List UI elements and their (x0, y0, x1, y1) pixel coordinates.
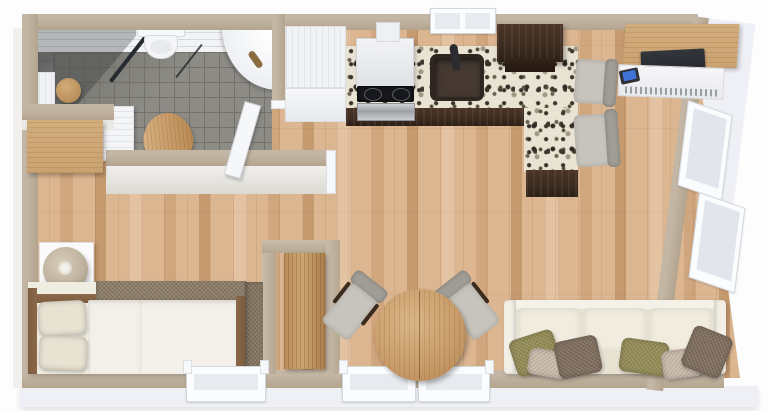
bed-throw-drape (245, 282, 263, 372)
bar-chair (573, 109, 621, 170)
bed-side-rail (28, 288, 37, 374)
floor-plan-render (0, 0, 768, 411)
fridge-tall-cabinet (285, 26, 346, 88)
wall-bathroom-bedroom-right (106, 150, 334, 166)
window-jamb (485, 360, 494, 374)
closet-wall-left (262, 240, 276, 374)
kitchen-window-pane (435, 13, 460, 29)
bed-pillow (38, 335, 87, 371)
round-dining-table (374, 289, 466, 381)
dining-table-seam (419, 291, 420, 379)
oven-front (357, 103, 415, 121)
bed-duvet (88, 300, 238, 374)
kitchen-window-pane (465, 13, 490, 29)
bedroom-wall-desk (27, 120, 103, 173)
espresso-wall-cabinet (497, 24, 563, 62)
wall-top (22, 14, 698, 30)
range-hood (356, 38, 414, 88)
wall-bathroom-bedroom-left (22, 104, 114, 120)
bedroom-window-pane (194, 374, 258, 390)
door-jamb-top (271, 100, 286, 109)
peninsula-base-front (526, 170, 578, 197)
cooktop-burner (392, 88, 410, 101)
bar-chair (573, 57, 618, 108)
bed-pillow (37, 300, 87, 336)
wall-end-cap (326, 150, 336, 194)
cooktop-burner (364, 88, 382, 101)
kitchen-counter-peninsula (524, 108, 578, 172)
wall-bathroom-kitchen (272, 14, 285, 108)
window-jamb (339, 360, 348, 374)
shower-stool (56, 78, 81, 103)
window-jamb (183, 360, 192, 374)
espresso-wall-cabinet-lip (505, 58, 555, 72)
wall-face-hall (106, 166, 334, 194)
closet-wardrobe (284, 253, 325, 369)
toilet-seat (150, 40, 172, 54)
table-lamp-top (58, 261, 72, 275)
window-jamb (260, 360, 269, 374)
bed-footboard-rail (236, 296, 245, 374)
range-hood-vent (376, 22, 400, 42)
fridge-front-face (285, 88, 346, 122)
